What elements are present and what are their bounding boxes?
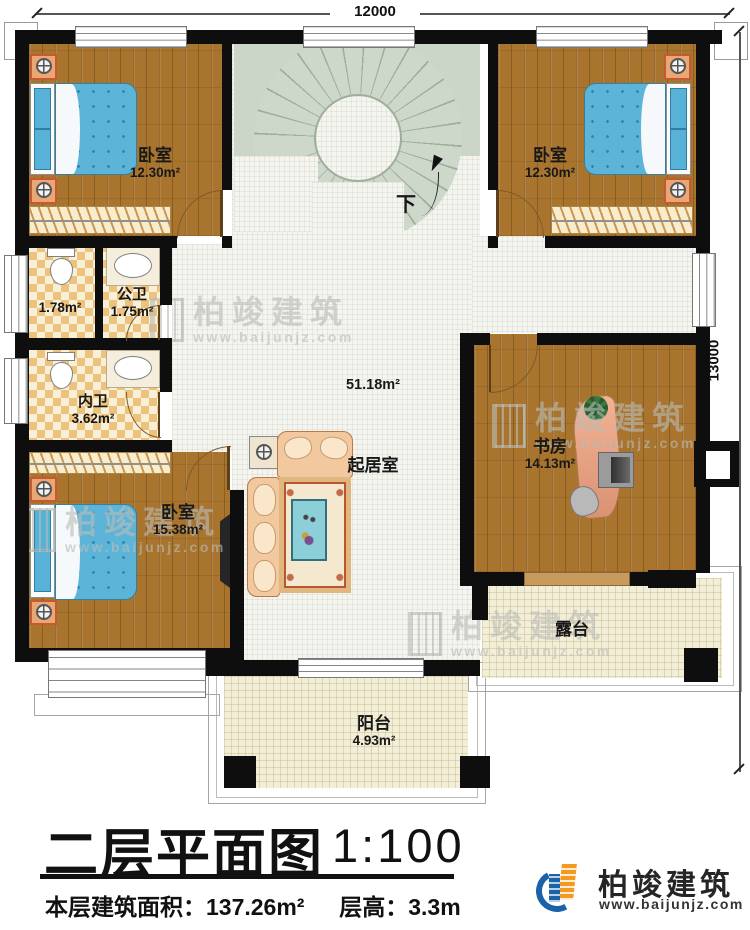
nightstand xyxy=(30,600,57,625)
sink-icon xyxy=(114,253,152,278)
lamp-icon xyxy=(670,58,686,74)
logo-website: www.baijunjz.com xyxy=(599,896,744,912)
monitor-icon xyxy=(598,452,634,488)
wall-bath-right-lower xyxy=(160,350,172,392)
room-name: 卧室 xyxy=(533,146,567,165)
dimension-right-value: 13000 xyxy=(706,297,723,425)
wall-study-left xyxy=(460,345,474,572)
floor-height-label: 层高： xyxy=(339,894,408,920)
wall-living-bottom-b xyxy=(420,660,480,676)
wardrobe xyxy=(29,452,171,474)
bed-pillow xyxy=(670,88,687,129)
side-table xyxy=(249,436,278,469)
lamp-icon xyxy=(670,182,686,198)
door-leaf xyxy=(227,446,230,490)
room-area: 3.62m² xyxy=(72,411,115,426)
nightstand xyxy=(30,178,57,204)
floor-hall-left-strip xyxy=(172,244,232,452)
stair-cut-bottom xyxy=(312,182,404,232)
room-label-living-area: 51.18m² xyxy=(333,377,413,393)
room-area: 12.30m² xyxy=(525,165,575,180)
logo-building-icon xyxy=(536,862,590,914)
room-area: 4.93m² xyxy=(353,733,396,748)
plan-scale: 1:100 xyxy=(332,818,465,873)
room-area: 15.38m² xyxy=(153,522,203,537)
window-left-bath-private xyxy=(4,358,28,424)
room-label-bedroom-bl: 卧室 15.38m² xyxy=(128,503,228,537)
room-label-terrace: 露台 xyxy=(544,620,600,639)
bed-pillow xyxy=(34,88,51,129)
sofa-pillow xyxy=(282,434,314,461)
terrace-door-threshold xyxy=(524,572,630,586)
sink-icon xyxy=(114,356,152,380)
room-area: 51.18m² xyxy=(346,377,400,393)
room-label-balcony: 阳台 4.93m² xyxy=(334,714,414,748)
monitor-screen xyxy=(611,457,630,483)
dimension-text: 12000 xyxy=(354,3,396,20)
window-top-1 xyxy=(75,26,187,48)
dimension-text: 13000 xyxy=(706,340,723,382)
stair-well-opening xyxy=(314,94,402,182)
sofa-cushion xyxy=(253,522,276,554)
wardrobe xyxy=(29,206,171,234)
wall-right-upper xyxy=(696,30,710,255)
bed-sheet xyxy=(641,84,665,174)
nightstand xyxy=(30,477,57,502)
wall-bath-bottom xyxy=(15,440,172,452)
room-area: 14.13m² xyxy=(525,456,575,471)
balcony-sliding-door xyxy=(298,658,424,678)
balcony-pillar-right xyxy=(460,756,490,788)
lamp-icon xyxy=(36,182,52,198)
floor-area-value: 137.26m² xyxy=(206,894,304,920)
room-label-bedroom-tr: 卧室 12.30m² xyxy=(500,146,600,180)
sofa-left xyxy=(247,477,280,597)
bed-headboard xyxy=(30,504,55,598)
bed-pillow xyxy=(34,510,51,552)
sofa-cushion xyxy=(253,484,276,516)
wardrobe-rail xyxy=(30,220,170,222)
sofa-cushion xyxy=(253,560,276,592)
floor-plan-page: 下 xyxy=(0,0,750,930)
room-label-bath-private: 内卫 3.62m² xyxy=(58,394,128,426)
room-name: 内卫 xyxy=(78,394,108,411)
title-underline xyxy=(40,874,454,879)
stair-down-label: 下 xyxy=(396,194,416,216)
room-name: 阳台 xyxy=(357,714,391,733)
floor-corridor-right xyxy=(472,236,696,333)
wall-study-top-a xyxy=(460,333,490,345)
room-name: 公卫 xyxy=(117,287,147,304)
room-label-living-name: 起居室 xyxy=(330,456,416,475)
dimension-top-value: 12000 xyxy=(330,3,420,20)
room-label-bedroom-tl: 卧室 12.30m² xyxy=(105,146,205,180)
lamp-icon xyxy=(36,58,52,74)
door-leaf xyxy=(496,190,499,237)
floor-stats: 本层建筑面积：137.26m² 层高：3.3m xyxy=(45,888,461,922)
wall-living-bottom-a xyxy=(230,660,300,676)
logo-tower-blue xyxy=(549,874,560,902)
toilet-tank xyxy=(47,352,75,361)
floor-height-value: 3.3m xyxy=(408,894,460,920)
wall-terrace-corner-a xyxy=(472,586,488,620)
plant-icon xyxy=(584,396,608,420)
window-top-3 xyxy=(536,26,648,48)
wall-bedroom-tr-bottom-b xyxy=(545,236,696,248)
room-label-study: 书房 14.13m² xyxy=(505,437,595,471)
table-lamp-icon xyxy=(256,444,272,460)
terrace-pillar xyxy=(684,648,718,682)
bed-pillow xyxy=(34,129,51,170)
bed-pillow xyxy=(670,129,687,170)
lamp-icon xyxy=(36,604,52,620)
wall-bedroom-tl-corner xyxy=(222,236,232,248)
lamp-icon xyxy=(36,481,52,497)
company-logo: 柏竣建筑 www.baijunjz.com xyxy=(536,860,736,916)
door-leaf xyxy=(220,190,223,237)
room-label-bath-stall-area: 1.78m² xyxy=(28,300,92,315)
door-leaf xyxy=(158,392,160,437)
stairwell xyxy=(234,44,480,232)
room-name: 起居室 xyxy=(348,456,399,475)
wall-niche-inner xyxy=(706,451,730,479)
nightstand xyxy=(664,178,691,204)
room-name: 卧室 xyxy=(138,146,172,165)
wall-study-top-b xyxy=(537,333,696,345)
floor-area-label: 本层建筑面积： xyxy=(45,894,206,920)
room-name: 卧室 xyxy=(161,503,195,522)
wardrobe-rail xyxy=(552,220,692,222)
room-area: 1.78m² xyxy=(39,300,82,315)
wall-right-lower xyxy=(696,485,710,573)
room-name: 书房 xyxy=(533,437,567,456)
toilet-tank xyxy=(47,248,75,257)
stair-cut-left xyxy=(234,156,318,232)
wall-study-bottom-a xyxy=(460,572,524,586)
bay-window xyxy=(48,650,206,698)
bed xyxy=(55,504,137,600)
room-area: 12.30m² xyxy=(130,165,180,180)
window-left-bath-public xyxy=(4,255,28,333)
coffee-table xyxy=(291,499,327,561)
stair-down-text: 下 xyxy=(396,194,416,216)
nightstand xyxy=(664,54,691,80)
window-top-2 xyxy=(303,26,415,48)
wall-bedroom-tr-left xyxy=(488,30,498,190)
nightstand xyxy=(30,54,57,80)
wardrobe xyxy=(551,206,693,234)
room-label-bath-public: 公卫 1.75m² xyxy=(100,287,164,319)
wall-terrace-top-right xyxy=(648,570,696,588)
room-name: 露台 xyxy=(555,620,589,639)
wall-bedroom-tl-right xyxy=(222,30,232,190)
bed-pillow xyxy=(34,550,51,592)
wall-bedroom-bl-right xyxy=(230,490,244,660)
bed-headboard xyxy=(30,83,55,175)
door-leaf xyxy=(489,345,491,392)
bed-sheet xyxy=(56,84,80,174)
stair-leader-line xyxy=(412,172,439,216)
dimension-line-right xyxy=(739,32,741,772)
room-area: 1.75m² xyxy=(111,304,154,319)
wardrobe-rail xyxy=(30,463,170,465)
balcony-pillar-left xyxy=(224,756,256,788)
bed-sheet xyxy=(56,505,80,599)
bed-headboard xyxy=(666,83,691,175)
